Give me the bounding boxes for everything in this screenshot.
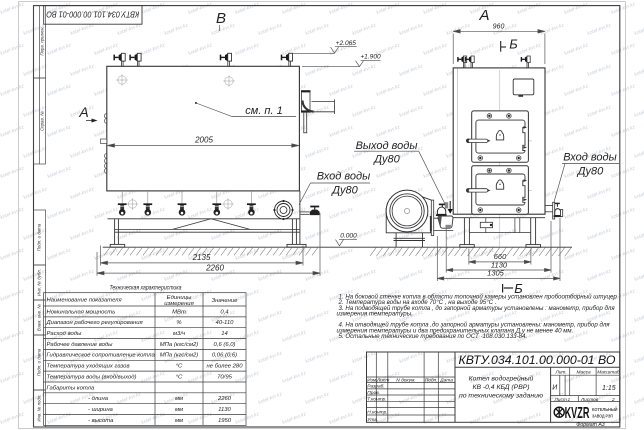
svg-text:Лист: Лист xyxy=(376,377,389,383)
svg-text:%: % xyxy=(176,320,181,326)
svg-text:Номинальная мощность: Номинальная мощность xyxy=(47,309,116,315)
svg-text:КОТЕЛЬНЫЙ: КОТЕЛЬНЫЙ xyxy=(592,405,618,412)
svg-text:°С: °С xyxy=(176,374,183,380)
svg-text:Подп. и дата: Подп. и дата xyxy=(37,348,42,376)
svg-text:Инв. № подл.: Инв. № подл. xyxy=(37,394,42,421)
svg-text:Пров.: Пров. xyxy=(367,390,380,396)
svg-text:°С: °С xyxy=(176,364,183,370)
svg-text:Диапазон рабочего регулировани: Диапазон рабочего регулирования xyxy=(46,320,144,326)
svg-text:Взам. инв. №: Взам. инв. № xyxy=(37,304,42,331)
svg-text:Перв. примен.: Перв. примен. xyxy=(40,26,45,55)
svg-text:0,4: 0,4 xyxy=(220,309,229,315)
svg-text:14: 14 xyxy=(221,331,228,337)
svg-text:измерения: измерения xyxy=(164,301,194,307)
svg-text:Подп. и дата: Подп. и дата xyxy=(37,223,42,251)
svg-text:2260: 2260 xyxy=(217,396,232,402)
svg-text:Значение: Значение xyxy=(212,298,239,304)
svg-text:МПа (кгс/см2): МПа (кгс/см2) xyxy=(160,353,199,359)
svg-text:Температура уходящих газов: Температура уходящих газов xyxy=(47,364,130,370)
svg-text:N докум.: N докум. xyxy=(396,377,415,383)
svg-text:1:15: 1:15 xyxy=(602,385,616,392)
svg-text:по техническому заданию: по техническому заданию xyxy=(459,392,543,400)
svg-text:Вход воды: Вход воды xyxy=(317,171,370,183)
svg-text:МПа (кгс/см2): МПа (кгс/см2) xyxy=(160,342,199,348)
svg-text:Утв.: Утв. xyxy=(367,417,378,423)
svg-text:А: А xyxy=(78,104,88,120)
svg-text:KVZR: KVZR xyxy=(565,405,590,422)
svg-text:2: 2 xyxy=(611,397,615,403)
svg-text:не более 280: не более 280 xyxy=(207,364,244,370)
svg-text:А: А xyxy=(478,7,489,24)
svg-text:40-110: 40-110 xyxy=(216,320,235,326)
svg-text:+2.065: +2.065 xyxy=(336,40,357,47)
svg-text:2005: 2005 xyxy=(194,136,213,145)
svg-text:Ду80: Ду80 xyxy=(576,166,604,178)
svg-text:- ширина: - ширина xyxy=(88,407,114,413)
svg-text:Листов: Листов xyxy=(580,397,599,403)
svg-text:Расход воды: Расход воды xyxy=(47,331,83,337)
svg-text:Масса: Масса xyxy=(577,370,592,376)
svg-text:Гидравлическое сопротивление к: Гидравлическое сопротивление котла xyxy=(47,353,156,359)
svg-text:мм: мм xyxy=(175,407,183,413)
svg-text:КВТУ.034.101.00.000-01 ВО: КВТУ.034.101.00.000-01 ВО xyxy=(459,353,616,367)
svg-text:1: 1 xyxy=(568,397,571,403)
svg-text:Техническая характеристика: Техническая характеристика xyxy=(110,285,182,292)
svg-text:Ду80: Ду80 xyxy=(372,153,400,165)
svg-text:2260: 2260 xyxy=(205,263,224,272)
svg-text:Наименование показателя: Наименование показателя xyxy=(47,298,123,304)
svg-text:Лит.: Лит. xyxy=(554,370,566,376)
svg-text:Н.контр.: Н.контр. xyxy=(367,410,387,416)
svg-text:- длина: - длина xyxy=(88,396,109,402)
svg-text:0.000: 0.000 xyxy=(340,233,357,240)
svg-text:Т.контр.: Т.контр. xyxy=(367,396,386,402)
svg-text:+1.900: +1.900 xyxy=(360,54,381,61)
svg-text:0,06 (0,6): 0,06 (0,6) xyxy=(212,353,237,359)
svg-text:КВТУ.034.101.00.000-01 ВО: КВТУ.034.101.00.000-01 ВО xyxy=(46,10,139,20)
svg-text:Котел водогрейный: Котел водогрейный xyxy=(469,375,534,383)
svg-text:Разраб.: Разраб. xyxy=(367,384,384,390)
svg-text:мм: мм xyxy=(175,418,183,424)
svg-text:Рабочее давление воды: Рабочее давление воды xyxy=(47,342,114,348)
svg-text:Изм.: Изм. xyxy=(367,377,377,383)
svg-text:Лист: Лист xyxy=(554,397,567,403)
svg-text:Б: Б xyxy=(509,37,518,52)
svg-text:Габариты котла: Габариты котла xyxy=(47,385,95,391)
svg-text:2135: 2135 xyxy=(192,253,211,262)
svg-text:70/95: 70/95 xyxy=(217,374,232,380)
svg-text:Температура воды (вход/выход): Температура воды (вход/выход) xyxy=(47,374,137,380)
svg-text:см. п. 1: см. п. 1 xyxy=(245,105,282,117)
svg-text:5. Остальные технические треб: 5. Остальные технические требования по О… xyxy=(339,333,528,340)
svg-text:- высота: - высота xyxy=(88,418,114,424)
svg-text:Подп.: Подп. xyxy=(425,377,438,383)
svg-text:Ду80: Ду80 xyxy=(330,185,358,197)
svg-text:1305: 1305 xyxy=(487,269,505,278)
svg-text:960: 960 xyxy=(493,24,505,31)
svg-text:Выход воды: Выход воды xyxy=(356,140,418,152)
svg-text:ЗАВОД РЭП: ЗАВОД РЭП xyxy=(592,413,613,418)
svg-text:Формат А3: Формат А3 xyxy=(576,422,604,428)
svg-text:Справ. №: Справ. № xyxy=(40,111,45,131)
svg-text:1130: 1130 xyxy=(218,407,231,413)
svg-text:Дата: Дата xyxy=(439,377,453,383)
svg-text:КВ -0,4 КБД (РВР): КВ -0,4 КБД (РВР) xyxy=(472,384,529,391)
svg-text:Инв. № дубл.: Инв. № дубл. xyxy=(37,269,42,296)
svg-text:м3/ч: м3/ч xyxy=(173,331,185,337)
svg-text:0,6 (6,0): 0,6 (6,0) xyxy=(214,342,236,348)
svg-text:мм: мм xyxy=(175,396,183,402)
svg-text:Вход воды: Вход воды xyxy=(563,152,616,164)
svg-text:измерения температуры.: измерения температуры. xyxy=(337,311,413,318)
svg-text:МВт: МВт xyxy=(172,309,186,315)
svg-text:В: В xyxy=(216,10,226,27)
svg-text:1950: 1950 xyxy=(218,418,232,424)
svg-text:Масштаб: Масштаб xyxy=(597,370,620,376)
